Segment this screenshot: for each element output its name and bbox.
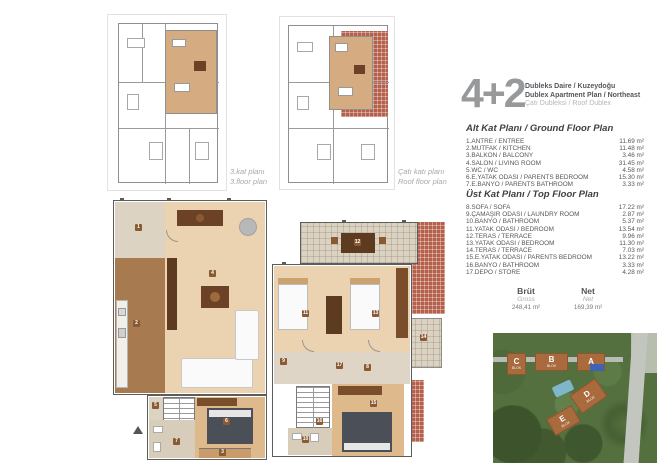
room-row: 1.ANTRE / ENTREE11.69 m² — [466, 138, 644, 145]
room-row: 5.WC / WC4.58 m² — [466, 167, 644, 174]
room-row: 9.ÇAMAŞIR ODASI / LAUNDRY ROOM2.87 m² — [466, 211, 644, 218]
toilet — [153, 442, 161, 452]
living-room — [165, 202, 265, 393]
gross-total: Brüt Gross 248,41 m² — [498, 286, 554, 312]
ground-floor-room-list: 1.ANTRE / ENTREE11.69 m² 2.MUTFAK / KITC… — [466, 138, 644, 188]
apartment-type: 4+2 — [461, 74, 525, 112]
room-number-badge: 12 — [354, 239, 361, 246]
ground-floor-plan: 1 2 3 4 5 6 7 — [113, 200, 267, 462]
floor3-plan-label: 3.kat planı 3.floor plan — [230, 167, 267, 186]
site-aerial-photo: CBLOK BBLOK A DBLOK EBLOK — [493, 333, 657, 463]
room-number-badge: 13 — [372, 310, 379, 317]
room-row: 6.E.YATAK ODASI / PARENTS BEDROOM15.30 m… — [466, 174, 644, 181]
highlighted-apartment — [329, 36, 373, 110]
room-number-badge: 7 — [173, 438, 180, 445]
bed — [207, 408, 253, 444]
ground-floor-title: Alt Kat Planı / Ground Floor Plan — [466, 123, 613, 134]
room-number-badge: 3 — [219, 449, 226, 456]
top-floor-title: Üst Kat Planı / Top Floor Plan — [466, 189, 599, 200]
room-row: 7.E.BANYO / PARENTS BATHROOM3.33 m² — [466, 181, 644, 188]
room-row: 11.YATAK ODASI / BEDROOM13.54 m² — [466, 226, 644, 233]
top-floor-plan: 8 9 10 11 12 13 14 15 16 17 — [272, 222, 445, 462]
dresser — [338, 386, 382, 395]
coffee-table — [201, 286, 229, 308]
room-row: 8.SOFA / SOFA17.22 m² — [466, 204, 644, 211]
washbasin — [292, 433, 302, 440]
site-block-c: CBLOK — [507, 353, 526, 375]
bathroom — [288, 428, 332, 455]
pillows — [344, 443, 390, 450]
room-number-badge: 9 — [280, 358, 287, 365]
outdoor-chair — [331, 237, 338, 244]
apartment-location-highlight — [590, 364, 604, 371]
room-number-badge: 2 — [133, 320, 140, 327]
site-road — [623, 333, 648, 463]
bed — [342, 412, 392, 452]
room-number-badge: 5 — [152, 402, 159, 409]
bed — [278, 284, 308, 330]
wardrobe — [396, 268, 408, 338]
terrace-2 — [408, 318, 442, 368]
room-row: 4.SALON / LIVING ROOM31.45 m² — [466, 160, 644, 167]
room-number-badge: 6 — [223, 418, 230, 425]
sink — [118, 308, 126, 316]
site-block-d: DBLOK — [569, 378, 607, 414]
room-row: 13.YATAK ODASI / BEDROOM11.30 m² — [466, 240, 644, 247]
tv-unit — [167, 258, 177, 330]
pillows — [209, 410, 251, 417]
shower — [310, 433, 319, 442]
dresser — [197, 398, 237, 406]
room-row: 3.BALKON / BALCONY3.46 m² — [466, 152, 644, 159]
site-block-a: A — [577, 353, 605, 371]
subtitle-line-en: Dublex Apartment Plan / Northeast — [525, 92, 640, 101]
room-number-badge: 4 — [209, 270, 216, 277]
floor3-plan-thumbnail — [107, 14, 227, 191]
room-number-badge: 14 — [420, 334, 427, 341]
highlighted-apartment — [165, 30, 217, 114]
floor3-plan-outline — [118, 23, 218, 183]
top-floor-room-list: 8.SOFA / SOFA17.22 m² 9.ÇAMAŞIR ODASI / … — [466, 204, 644, 276]
bathroom — [149, 420, 195, 458]
desk — [326, 296, 342, 334]
room-row: 17.DEPO / STORE4.28 m² — [466, 269, 644, 276]
washbasin — [153, 426, 163, 433]
entrance-arrow-icon — [133, 426, 143, 434]
bed — [350, 284, 380, 330]
room-number-badge: 10 — [302, 436, 309, 443]
kitchen-room — [115, 258, 165, 393]
room-number-badge: 11 — [302, 310, 309, 317]
roof-plan-outline — [288, 25, 388, 183]
area-totals: Brüt Gross 248,41 m² Net Net 169,39 m² — [498, 286, 616, 312]
room-number-badge: 1 — [135, 224, 142, 231]
room-row: 12.TERAS / TERRACE9.96 m² — [466, 233, 644, 240]
room-row: 14.TERAS / TERRACE7.03 m² — [466, 247, 644, 254]
sofa — [181, 358, 253, 388]
room-number-badge: 8 — [364, 364, 371, 371]
sofa-chaise — [235, 310, 259, 360]
apartment-subtitle: Dubleks Daire / Kuzeydoğu Dublex Apartme… — [525, 83, 640, 109]
round-rug — [239, 218, 257, 236]
brochure-page: 3.kat planı 3.floor plan Çatı katı planı… — [0, 0, 660, 466]
room-number-badge: 15 — [370, 400, 377, 407]
outdoor-chair — [379, 237, 386, 244]
stove — [118, 328, 126, 338]
roof-plan-label: Çatı katı planı Roof floor plan — [398, 167, 447, 186]
room-row: 2.MUTFAK / KITCHEN11.48 m² — [466, 145, 644, 152]
room-row: 15.E.YATAK ODASI / PARENTS BEDROOM13.22 … — [466, 254, 644, 261]
net-total: Net Net 169,39 m² — [560, 286, 616, 312]
room-number-badge: 17 — [336, 362, 343, 369]
subtitle-line-roof: Çatı Dubleksi / Roof Dublex — [525, 100, 640, 109]
subtitle-line-tr: Dubleks Daire / Kuzeydoğu — [525, 83, 640, 92]
site-block-b: BBLOK — [535, 353, 568, 371]
room-row: 16.BANYO / BATHROOM3.33 m² — [466, 262, 644, 269]
staircase — [296, 386, 330, 428]
dining-table — [177, 210, 223, 226]
room-number-badge: 16 — [316, 418, 323, 425]
site-block-e: EBLOK — [546, 405, 581, 436]
room-row: 10.BANYO / BATHROOM5.37 m² — [466, 218, 644, 225]
roof-plan-thumbnail — [279, 16, 395, 190]
parents-bedroom — [332, 384, 404, 456]
